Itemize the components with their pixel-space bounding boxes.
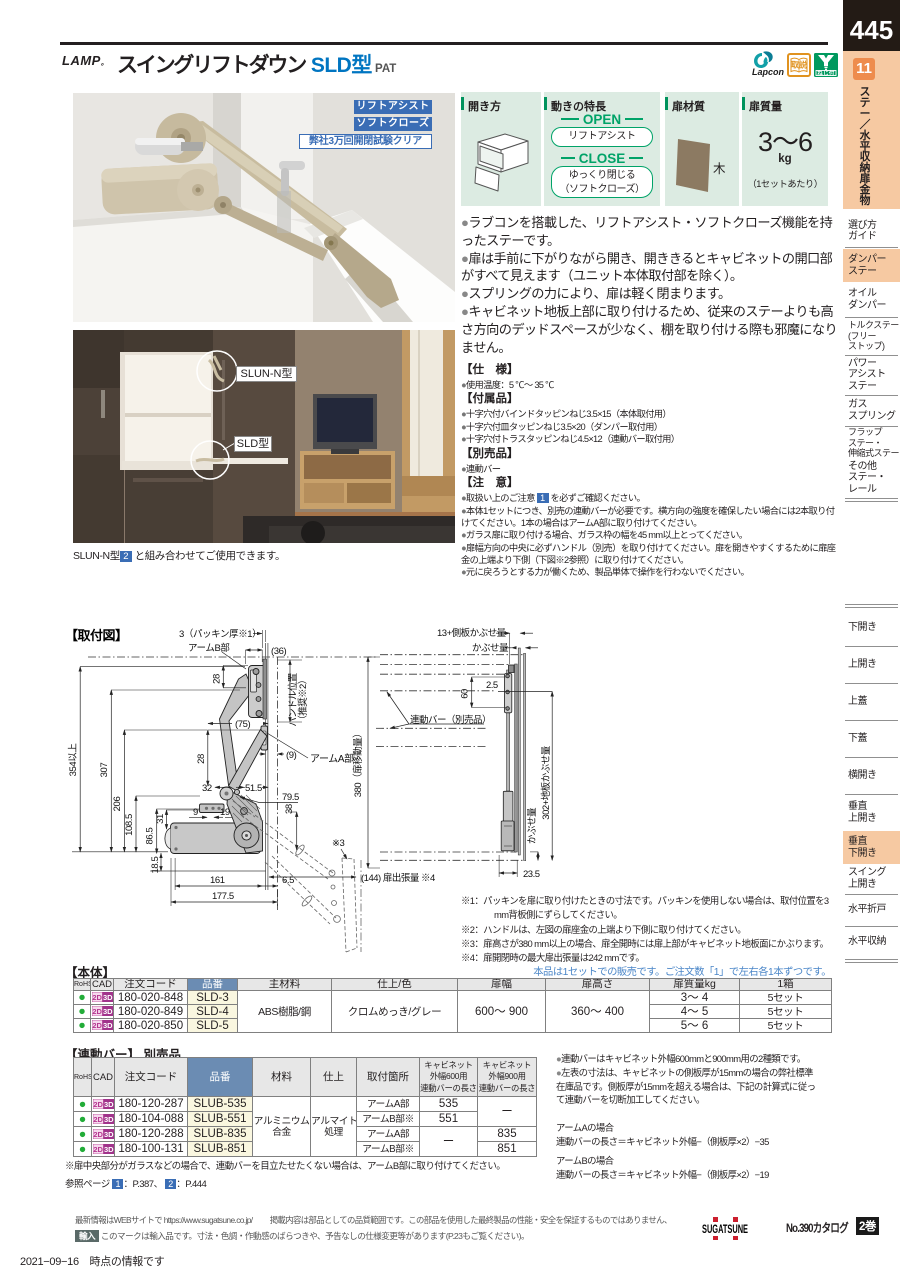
svg-text:3D: 3D — [104, 1100, 114, 1109]
svg-text:(36): (36) — [271, 646, 287, 657]
svg-text:307: 307 — [99, 763, 110, 778]
svg-text:アームB部: アームB部 — [188, 642, 229, 654]
svg-text:38: 38 — [284, 804, 295, 814]
svg-text:3D: 3D — [104, 1130, 114, 1139]
svg-text:2D: 2D — [92, 993, 102, 1002]
svg-text:380（扉移動量）: 380（扉移動量） — [352, 729, 364, 797]
svg-text:3D: 3D — [103, 1021, 113, 1030]
svg-text:28: 28 — [196, 754, 207, 764]
svg-text:3（パッキン厚※1）: 3（パッキン厚※1） — [179, 628, 261, 640]
svg-text:（推奨※2）: （推奨※2） — [297, 675, 309, 724]
svg-text:32: 32 — [202, 783, 212, 794]
svg-text:2D: 2D — [93, 1100, 103, 1109]
svg-text:108.5: 108.5 — [124, 814, 135, 836]
svg-text:206: 206 — [112, 797, 123, 812]
svg-text:【取付図】: 【取付図】 — [65, 628, 128, 643]
svg-text:354以上: 354以上 — [68, 743, 79, 777]
svg-text:28: 28 — [212, 674, 223, 684]
svg-text:31: 31 — [155, 814, 166, 824]
svg-text:取説: 取説 — [791, 60, 807, 70]
svg-text:2D: 2D — [93, 1145, 103, 1154]
svg-text:177.5: 177.5 — [212, 891, 234, 902]
svg-text:2D: 2D — [92, 1007, 102, 1016]
svg-text:18.5: 18.5 — [150, 856, 161, 873]
svg-text:3D: 3D — [104, 1115, 114, 1124]
svg-text:(9): (9) — [286, 750, 297, 761]
svg-text:302+地板かぶせ量: 302+地板かぶせ量 — [540, 745, 552, 819]
svg-text:Lapcon: Lapcon — [752, 67, 784, 77]
svg-text:かぶせ量: かぶせ量 — [472, 643, 509, 654]
svg-text:161: 161 — [210, 875, 225, 886]
svg-text:かぶせ量: かぶせ量 — [527, 807, 538, 844]
svg-text:79.5: 79.5 — [282, 792, 299, 803]
svg-text:アームA部: アームA部 — [310, 752, 354, 765]
svg-text:(75): (75) — [235, 719, 251, 730]
svg-text:3D: 3D — [103, 993, 113, 1002]
svg-text:13+側板かぶせ量: 13+側板かぶせ量 — [437, 627, 507, 639]
svg-text:連動バー（別売品）: 連動バー（別売品） — [410, 714, 491, 726]
svg-text:2D: 2D — [92, 1021, 102, 1030]
svg-text:3D: 3D — [104, 1145, 114, 1154]
svg-text:51.5: 51.5 — [245, 783, 262, 794]
svg-text:60: 60 — [460, 689, 471, 699]
svg-text:6.5: 6.5 — [282, 875, 294, 886]
svg-text:2D: 2D — [93, 1130, 103, 1139]
svg-text:3D: 3D — [103, 1007, 113, 1016]
svg-text:2D: 2D — [93, 1115, 103, 1124]
svg-text:※3: ※3 — [332, 838, 345, 849]
svg-text:(144) 扉出張量 ※4: (144) 扉出張量 ※4 — [361, 872, 435, 884]
svg-text:23.5: 23.5 — [523, 869, 540, 880]
svg-text:9: 9 — [193, 807, 198, 818]
svg-text:SUGATSUNE: SUGATSUNE — [702, 1224, 748, 1236]
svg-text:19: 19 — [220, 807, 230, 818]
svg-text:2.5: 2.5 — [486, 680, 498, 691]
svg-text:ねじ付: ねじ付 — [817, 69, 835, 77]
svg-text:86.5: 86.5 — [145, 827, 156, 844]
